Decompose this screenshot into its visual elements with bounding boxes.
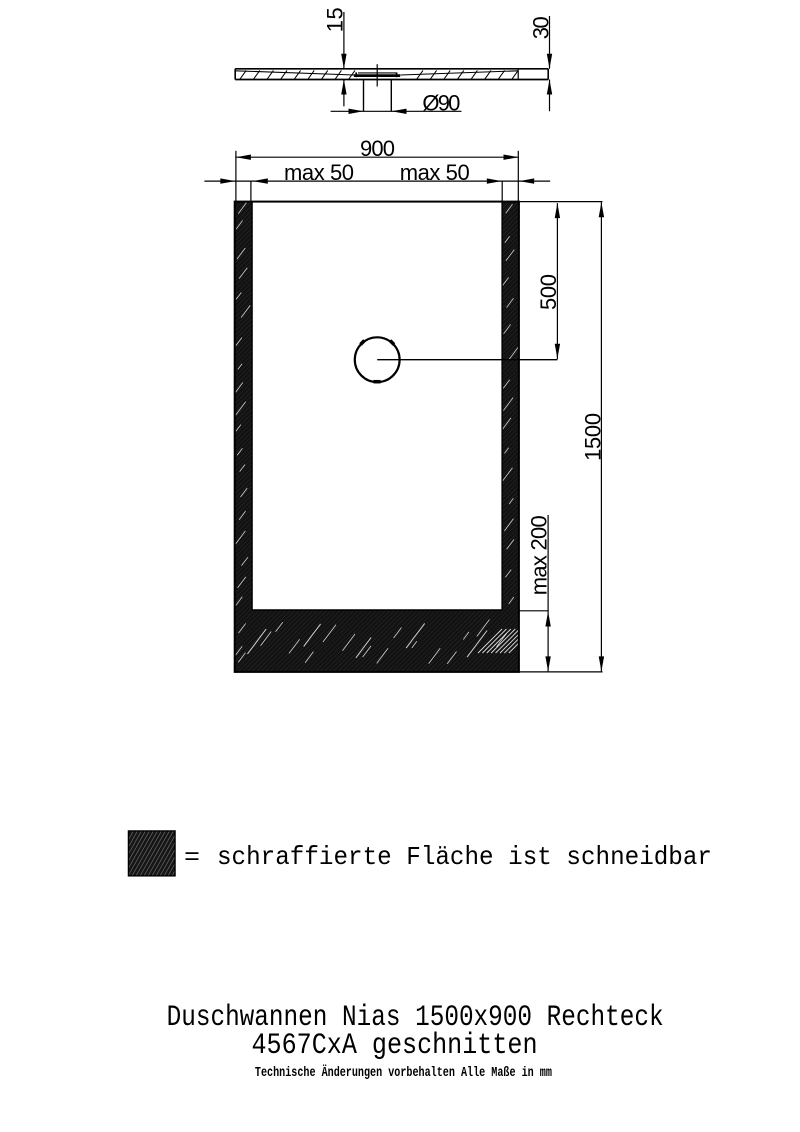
svg-text:15: 15	[323, 7, 348, 32]
svg-text:900: 900	[360, 136, 395, 161]
svg-text:30: 30	[529, 16, 554, 39]
svg-text:=: =	[184, 845, 200, 872]
svg-text:Ø90: Ø90	[422, 91, 460, 116]
svg-text:1500: 1500	[581, 413, 606, 461]
svg-text:max 50: max 50	[284, 160, 354, 185]
svg-text:Technische Änderungen vorbehal: Technische Änderungen vorbehalten Alle M…	[255, 1065, 552, 1081]
svg-text:4567CxA geschnitten: 4567CxA geschnitten	[252, 1029, 538, 1063]
svg-text:max 50: max 50	[400, 160, 470, 185]
svg-text:500: 500	[536, 274, 561, 310]
svg-text:max 200: max 200	[526, 515, 551, 595]
svg-text:schraffierte Fläche ist schnei: schraffierte Fläche ist schneidbar	[217, 842, 712, 872]
